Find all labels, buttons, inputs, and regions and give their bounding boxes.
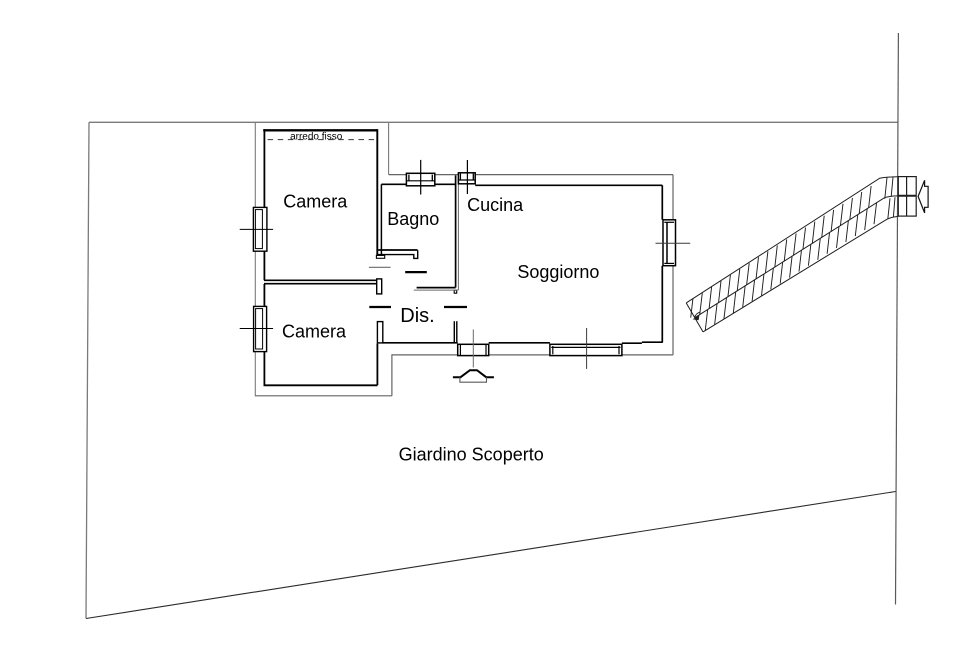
svg-text:Dis.: Dis. [400, 305, 434, 327]
svg-text:Bagno: Bagno [387, 209, 439, 229]
svg-text:Soggiorno: Soggiorno [517, 262, 599, 282]
svg-text:Cucina: Cucina [467, 195, 524, 215]
svg-text:arredo fisso: arredo fisso [290, 131, 343, 142]
svg-text:Giardino Scoperto: Giardino Scoperto [399, 444, 544, 464]
svg-text:Camera: Camera [283, 191, 348, 211]
svg-text:Camera: Camera [282, 322, 347, 342]
